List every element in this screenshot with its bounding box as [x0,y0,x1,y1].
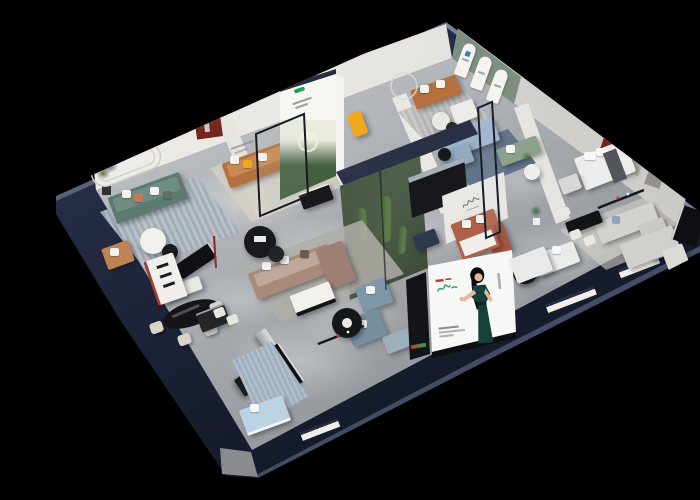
red-framed-print [624,112,638,128]
vanity-desk [661,153,693,175]
red-framed-print [642,137,656,153]
red-framed-print [627,130,641,146]
vanity-mirror [673,139,691,162]
pillow [110,248,119,256]
cream-dining-chair [149,320,165,335]
red-framed-print [609,105,623,121]
sofa-chaise [661,243,692,279]
showroom-render [0,0,700,500]
showroom-interior [0,0,700,500]
cut-wall-slice [300,418,341,441]
cut-wall-slice [618,255,660,278]
red-framed-print [639,119,653,135]
vanity-mirror [657,127,675,150]
red-framed-print [612,123,626,139]
